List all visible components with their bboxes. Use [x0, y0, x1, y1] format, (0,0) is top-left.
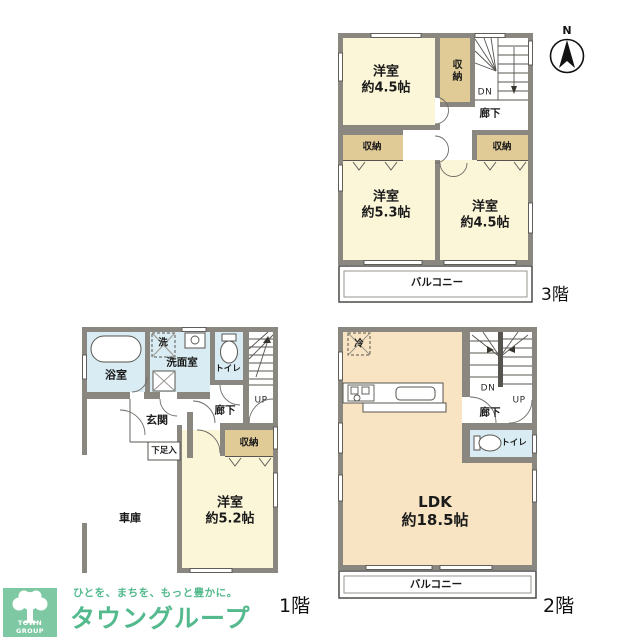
logo-tagline: ひとを、まちを、もっと豊かに。: [73, 585, 238, 600]
kitchen-counter-step: [363, 403, 446, 412]
room-label-3f-sw: 洋室 約5.3帖: [361, 189, 410, 220]
room-name: 洋室: [460, 199, 509, 215]
room-label-3f-nw: 洋室 約4.5帖: [361, 64, 410, 95]
floor2-room-fills: [343, 332, 532, 565]
logo-mark: TOWN GROUP: [3, 588, 57, 637]
closet-top-label: 収納: [449, 59, 461, 83]
floor3-label: 3階: [541, 280, 569, 305]
closet-right-label: 収納: [492, 141, 511, 152]
stair-up-arrow: [263, 336, 271, 343]
floor2-plan-drawing: [338, 327, 537, 600]
compass-rose: [548, 37, 586, 75]
entrance-label: 玄関: [146, 413, 168, 426]
toilet-icon-2f: [479, 435, 501, 451]
room-name: LDK: [401, 493, 468, 511]
hallway-label-1f: 廊下: [215, 405, 236, 418]
compass-north-label: N: [548, 24, 586, 37]
floor2-toilet-fixture: [474, 435, 501, 451]
washroom-label: 洗面室: [166, 357, 198, 370]
toilet-label-2f: トイレ: [501, 438, 527, 448]
room-name: 洋室: [361, 189, 410, 205]
room-size: 約4.5帖: [361, 80, 410, 96]
toilet-icon: [221, 341, 238, 363]
balcony-label-2f: バルコニー: [410, 579, 462, 592]
floor2-label: 2階: [543, 591, 574, 618]
stair-dn-label: DN: [478, 88, 493, 99]
toilet-tank-icon: [222, 334, 236, 341]
floor1-plan: 浴室 洗 洗面室 トイレ UP 廊下 玄関 下足入 収納 洋室 約5.2帖 車庫: [82, 327, 278, 573]
room-label-1f: 洋室 約5.2帖: [205, 495, 254, 526]
floor3-plan: 洋室 約4.5帖 洋室 約5.3帖 洋室 約4.5帖 収納 収納 収納 DN 廊…: [338, 33, 533, 303]
room-name: 洋室: [205, 495, 254, 511]
room-size: 約4.5帖: [460, 215, 509, 231]
floor2-stairs: [470, 332, 532, 387]
logo-company-en: TOWN GROUP: [3, 619, 57, 635]
room-size: 約5.3帖: [361, 205, 410, 221]
stair-arrow-right: [508, 346, 515, 353]
room-size: 約5.2帖: [205, 511, 254, 527]
logo-company-jp: タウングループ: [70, 599, 251, 635]
stair-up-label-2f: UP: [512, 396, 525, 407]
stair-down-arrow: [511, 86, 517, 94]
closet-label-1f: 収納: [239, 437, 258, 448]
kitchen-sink-icon: [396, 387, 435, 400]
bathroom-label: 浴室: [105, 368, 127, 381]
balcony-label-3f: バルコニー: [411, 277, 463, 290]
hallway-label-3f: 廊下: [480, 108, 501, 121]
floorplan-page: 洋室 約4.5帖 洋室 約5.3帖 洋室 約4.5帖 収納 収納 収納 DN 廊…: [0, 0, 640, 640]
hallway-label-2f: 廊下: [480, 407, 501, 420]
refrigerator-label: 冷: [354, 338, 364, 349]
ldk-label: LDK 約18.5帖: [401, 493, 468, 529]
room-name: 洋室: [361, 64, 410, 80]
garage-label: 車庫: [119, 511, 141, 524]
washer-label: 洗: [158, 337, 168, 348]
bathtub-icon: [91, 336, 141, 362]
compass-needle-icon: [559, 40, 575, 68]
closet-left-label: 収納: [362, 141, 381, 152]
stair-up-label-1f: UP: [254, 396, 267, 407]
room-label-3f-se: 洋室 約4.5帖: [460, 199, 509, 230]
stair-dn-label-2f: DN: [481, 384, 496, 395]
compass: N: [548, 24, 586, 86]
floor1-label: 1階: [279, 591, 310, 618]
sink-icon: [185, 333, 205, 348]
room-size: 約18.5帖: [401, 511, 468, 529]
shoe-cabinet-label: 下足入: [151, 446, 177, 456]
toilet-label-1f: トイレ: [215, 364, 241, 374]
floor2-plan: 冷 DN UP 廊下 トイレ LDK 約18.5帖 バルコニー: [338, 327, 537, 600]
floor1-stairs: [249, 332, 273, 385]
